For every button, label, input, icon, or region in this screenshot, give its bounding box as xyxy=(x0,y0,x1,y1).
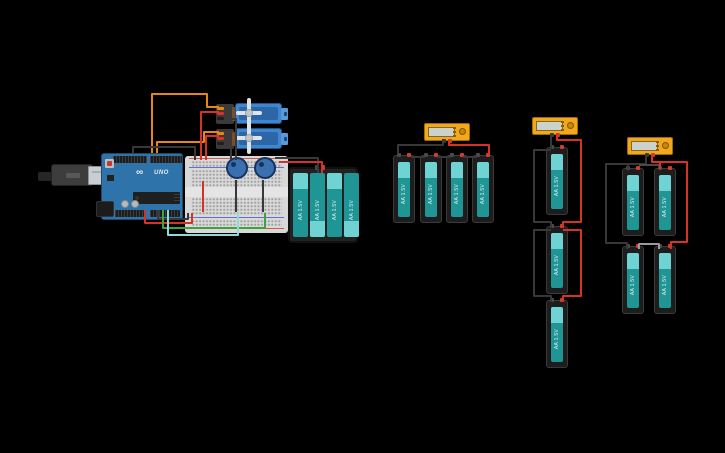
battery-label: AA 1.5V xyxy=(315,200,321,220)
battery-positive-terminal[interactable] xyxy=(636,244,640,248)
servo-1-ground-pin xyxy=(217,117,224,120)
multimeter-3-dial[interactable] xyxy=(662,142,669,149)
multimeter-1-dial[interactable] xyxy=(459,128,466,135)
battery-body: AA 1.5V xyxy=(451,162,463,217)
usb-plug[interactable] xyxy=(51,164,93,186)
center-channel xyxy=(185,187,288,197)
battery-positive-terminal[interactable] xyxy=(636,166,640,170)
battery-negative-terminal[interactable] xyxy=(550,224,554,228)
battery-body: AA 1.5V xyxy=(551,307,563,362)
battery-negative-terminal[interactable] xyxy=(397,153,401,157)
pack-cell-2: AA 1.5V xyxy=(310,173,325,237)
battery-cap xyxy=(551,233,563,249)
multimeter-3-buttons xyxy=(656,141,659,152)
icsp-header xyxy=(174,194,180,202)
servo-2-ground-pin xyxy=(217,142,224,145)
pack-negative-terminal[interactable] xyxy=(315,165,319,170)
usb-logo-icon xyxy=(66,173,80,178)
multimeter-2[interactable] xyxy=(532,117,578,135)
multimeter-3-screen xyxy=(631,141,658,151)
reset-button-cap xyxy=(107,161,112,166)
battery-label: AA 1.5V xyxy=(349,200,355,220)
potentiometer-1-indicator xyxy=(231,162,236,167)
circuit-canvas[interactable]: ∞ UNO xyxy=(0,0,725,453)
battery-body: AA 1.5V xyxy=(627,175,639,230)
wire-layer xyxy=(0,0,725,453)
battery-label: AA 1.5V xyxy=(662,197,668,217)
battery-pack-4xaa[interactable]: AA 1.5V AA 1.5V AA 1.5V AA 1.5V xyxy=(288,167,358,243)
battery-negative-terminal[interactable] xyxy=(658,166,662,170)
battery-negative-terminal[interactable] xyxy=(476,153,480,157)
battery-cap xyxy=(451,162,463,178)
pack-cell-2-cap xyxy=(310,221,325,237)
battery-negative-terminal[interactable] xyxy=(550,298,554,302)
battery-positive-terminal[interactable] xyxy=(560,145,564,149)
pack-positive-terminal[interactable] xyxy=(321,165,325,170)
pack-cell-1-cap xyxy=(293,173,308,189)
battery-positive-terminal[interactable] xyxy=(560,298,564,302)
battery-aa-9[interactable]: AA 1.5V xyxy=(654,168,676,236)
multimeter-2-screen xyxy=(536,121,563,131)
battery-positive-terminal[interactable] xyxy=(486,153,490,157)
rail-positive-line-bottom xyxy=(189,228,284,229)
potentiometer-2[interactable] xyxy=(254,157,276,179)
battery-body: AA 1.5V xyxy=(659,253,671,308)
battery-cap xyxy=(398,162,410,178)
battery-label: AA 1.5V xyxy=(554,329,560,349)
battery-body: AA 1.5V xyxy=(425,162,437,217)
multimeter-3-negative-terminal[interactable] xyxy=(645,153,649,157)
reset-button[interactable] xyxy=(105,159,114,168)
battery-cap xyxy=(627,175,639,191)
battery-label: AA 1.5V xyxy=(428,184,434,204)
capacitor xyxy=(121,200,129,208)
battery-label: AA 1.5V xyxy=(554,255,560,275)
battery-cap xyxy=(627,253,639,269)
capacitor xyxy=(131,200,139,208)
battery-aa-2[interactable]: AA 1.5V xyxy=(420,155,442,223)
analog-pin-header[interactable] xyxy=(150,210,180,217)
servo-2-mount-hole xyxy=(284,137,287,141)
battery-cap xyxy=(551,307,563,323)
pack-cell-4-cap xyxy=(344,221,359,237)
potentiometer-1[interactable] xyxy=(226,157,248,179)
power-pin-header[interactable] xyxy=(115,210,144,217)
terminal-holes-bottom[interactable] xyxy=(191,197,282,215)
battery-body: AA 1.5V xyxy=(627,253,639,308)
voltage-regulator xyxy=(107,175,114,181)
wire-servo2-signal[interactable] xyxy=(157,132,219,153)
multimeter-1-screen xyxy=(428,127,455,137)
battery-body: AA 1.5V xyxy=(477,162,489,217)
rail-holes-bottom[interactable] xyxy=(191,219,282,226)
multimeter-1[interactable] xyxy=(424,123,470,141)
pack-cell-3-cap xyxy=(327,173,342,189)
arduino-model-label: UNO xyxy=(154,170,169,176)
battery-label: AA 1.5V xyxy=(554,176,560,196)
battery-label: AA 1.5V xyxy=(332,200,338,220)
battery-positive-terminal[interactable] xyxy=(668,166,672,170)
battery-label: AA 1.5V xyxy=(662,275,668,295)
battery-body: AA 1.5V xyxy=(551,154,563,209)
battery-negative-terminal[interactable] xyxy=(424,153,428,157)
wire-servo1-signal[interactable] xyxy=(152,94,219,153)
battery-body: AA 1.5V xyxy=(398,162,410,217)
servo-2-horn-hub xyxy=(245,134,253,142)
digital-pin-header-left[interactable] xyxy=(113,156,147,163)
battery-aa-11[interactable]: AA 1.5V xyxy=(654,246,676,314)
battery-aa-5[interactable]: AA 1.5V xyxy=(546,147,568,215)
multimeter-2-negative-terminal[interactable] xyxy=(550,133,554,137)
multimeter-2-buttons xyxy=(561,121,564,132)
servo-motor-2[interactable] xyxy=(216,123,290,155)
power-jack xyxy=(96,201,114,217)
battery-aa-6[interactable]: AA 1.5V xyxy=(546,226,568,294)
battery-body: AA 1.5V xyxy=(551,233,563,288)
wire-bank-negative[interactable] xyxy=(398,139,443,154)
battery-cap xyxy=(477,162,489,178)
battery-aa-1[interactable]: AA 1.5V xyxy=(393,155,415,223)
servo-2-signal-pin xyxy=(217,132,224,135)
servo-1-horn-hub xyxy=(245,109,253,117)
battery-aa-4[interactable]: AA 1.5V xyxy=(472,155,494,223)
battery-negative-terminal[interactable] xyxy=(658,244,662,248)
battery-label: AA 1.5V xyxy=(298,200,304,220)
servo-1-mount-tab xyxy=(281,108,288,120)
battery-aa-7[interactable]: AA 1.5V xyxy=(546,300,568,368)
battery-positive-terminal[interactable] xyxy=(407,153,411,157)
battery-aa-8[interactable]: AA 1.5V xyxy=(622,168,644,236)
battery-positive-terminal[interactable] xyxy=(460,153,464,157)
battery-cap xyxy=(659,253,671,269)
battery-positive-terminal[interactable] xyxy=(434,153,438,157)
multimeter-2-dial[interactable] xyxy=(567,122,574,129)
atmega-chip xyxy=(133,192,180,204)
pack-cell-4: AA 1.5V xyxy=(344,173,359,237)
battery-positive-terminal[interactable] xyxy=(560,224,564,228)
rail-negative-line-bottom xyxy=(189,217,284,218)
servo-1-mount-hole xyxy=(284,112,287,116)
battery-aa-3[interactable]: AA 1.5V xyxy=(446,155,468,223)
potentiometer-2-indicator xyxy=(259,162,264,167)
pack-cell-3: AA 1.5V xyxy=(327,173,342,237)
battery-label: AA 1.5V xyxy=(480,184,486,204)
battery-positive-terminal[interactable] xyxy=(668,244,672,248)
battery-label: AA 1.5V xyxy=(630,197,636,217)
pack-cell-1: AA 1.5V xyxy=(293,173,308,237)
multimeter-2-positive-terminal[interactable] xyxy=(556,133,560,137)
servo-2-power-pin xyxy=(217,137,224,140)
multimeter-1-positive-terminal[interactable] xyxy=(448,139,452,143)
multimeter-1-buttons xyxy=(453,127,456,138)
arduino-uno-board[interactable]: ∞ UNO xyxy=(101,153,183,220)
digital-pin-header-right[interactable] xyxy=(150,156,182,163)
battery-cap xyxy=(659,175,671,191)
battery-negative-terminal[interactable] xyxy=(626,166,630,170)
wire-bank-positive[interactable] xyxy=(449,139,489,154)
battery-negative-terminal[interactable] xyxy=(550,145,554,149)
battery-label: AA 1.5V xyxy=(454,184,460,204)
battery-negative-terminal[interactable] xyxy=(626,244,630,248)
multimeter-1-negative-terminal[interactable] xyxy=(442,139,446,143)
battery-negative-terminal[interactable] xyxy=(450,153,454,157)
battery-aa-10[interactable]: AA 1.5V xyxy=(622,246,644,314)
multimeter-3[interactable] xyxy=(627,137,673,155)
battery-label: AA 1.5V xyxy=(630,275,636,295)
battery-label: AA 1.5V xyxy=(401,184,407,204)
battery-cap xyxy=(425,162,437,178)
servo-2-mount-tab xyxy=(281,133,288,145)
battery-body: AA 1.5V xyxy=(659,175,671,230)
servo-1-power-pin xyxy=(217,112,224,115)
battery-cap xyxy=(551,154,563,170)
servo-1-signal-pin xyxy=(217,107,224,110)
arduino-logo: ∞ xyxy=(136,168,143,178)
multimeter-3-positive-terminal[interactable] xyxy=(651,153,655,157)
